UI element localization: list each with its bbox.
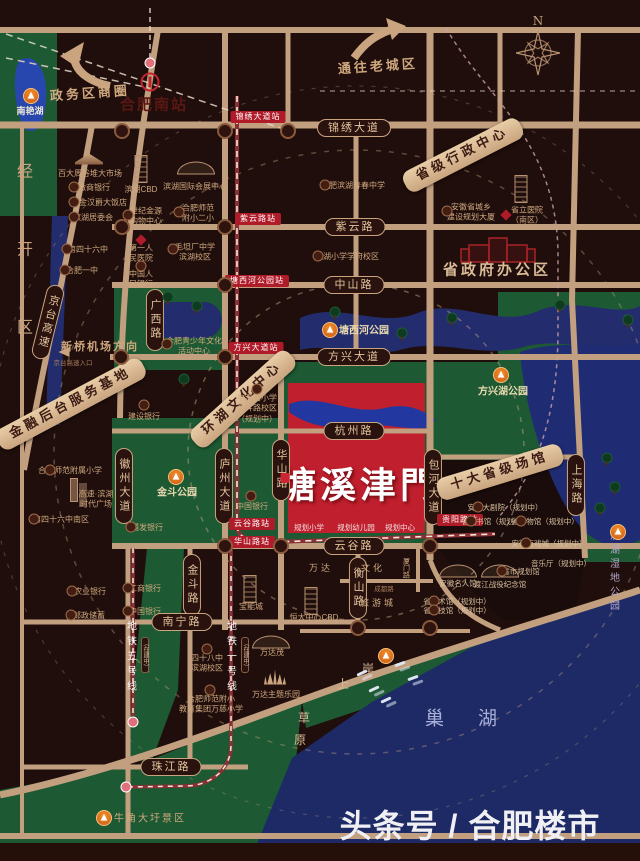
shore-char-yuan: 原 bbox=[294, 733, 306, 749]
tag-metro-line1: （在建中） bbox=[241, 637, 249, 673]
niujiao-park-icon bbox=[96, 810, 112, 826]
poi-binhu-cbd: 滨湖CBD bbox=[125, 185, 158, 195]
hengda-tower-icon bbox=[305, 587, 318, 615]
expo-shell-icon bbox=[177, 162, 215, 175]
zone-char-jing: 经 bbox=[17, 162, 33, 183]
label-chengdu-road: 成都路 bbox=[374, 586, 394, 594]
ribbon-finance-base: 金融后台服务基地 bbox=[0, 355, 149, 452]
junction-12 bbox=[350, 620, 366, 636]
shouchun-icon bbox=[320, 180, 331, 191]
hospital-building-icon bbox=[515, 175, 528, 203]
committee-icon bbox=[69, 212, 80, 223]
project-plan-kindergarten: 规划幼儿园 bbox=[337, 523, 375, 533]
line5-end-dot bbox=[128, 717, 139, 728]
hotel-icon bbox=[69, 197, 80, 208]
pill-huashan-road: 华山路 bbox=[272, 439, 290, 501]
no48-icon bbox=[202, 644, 213, 655]
poi-century-jinyuan-mall: 世纪金源 购物中心 bbox=[130, 207, 162, 228]
wanda-mao-icon bbox=[252, 636, 290, 649]
maotanchang-icon bbox=[168, 244, 179, 255]
poi-jindou-park: 金斗公园 bbox=[157, 487, 197, 500]
tree-11 bbox=[595, 503, 606, 514]
tree-10 bbox=[610, 482, 621, 493]
zone-char-kai: 开 bbox=[17, 240, 33, 261]
poi-shifan-no2-primary: 合肥师范 附小二小 bbox=[182, 204, 214, 225]
no46-icon bbox=[62, 244, 73, 255]
boc-south-icon bbox=[123, 606, 134, 617]
no46-south-icon bbox=[29, 514, 40, 525]
pill-luzhou-avenue: 庐州大道 bbox=[215, 448, 233, 524]
planning-tower-icon bbox=[442, 206, 453, 217]
tree-6 bbox=[447, 313, 458, 324]
poi-wanda-mao: 万达茂 bbox=[260, 648, 284, 658]
poi-peoples-bank: 中国人 民银行 bbox=[129, 270, 153, 291]
tree-3 bbox=[179, 374, 190, 385]
project-plan-center: 规划中心 bbox=[385, 523, 415, 533]
ribbon-provincial-admin-center: 省级行政中心 bbox=[400, 115, 526, 194]
label-xiamen-road: 厦门路 bbox=[401, 558, 410, 579]
cbd-tower-icon bbox=[135, 155, 148, 183]
poi-wanci-primary: 合肥师范附小 教育集团万慈小学 bbox=[179, 695, 243, 716]
station-metro-dot bbox=[145, 58, 156, 69]
venue-dot-3 bbox=[516, 516, 527, 527]
poi-hefei-no1-middle: 合肥一中 bbox=[66, 266, 98, 276]
abc-icon bbox=[67, 586, 78, 597]
pill-ziyun-road: 紫云路 bbox=[325, 218, 386, 236]
fangxinghu-park-icon bbox=[493, 367, 509, 383]
badge-huashan-road-station: 华山路站 bbox=[229, 536, 275, 548]
pill-zhujiang-road: 珠江路 bbox=[141, 758, 202, 776]
junction-9 bbox=[217, 538, 233, 554]
poi-gaosu-times-plaza: 高速·滨湖 时代广场 bbox=[79, 490, 114, 511]
poi-niujiao-scenic: 牛角大圩景区 bbox=[114, 813, 186, 826]
pill-nanning-road: 南宁路 bbox=[152, 613, 213, 631]
pill-jinxiu-avenue: 锦绣大道 bbox=[317, 119, 391, 137]
label-chaohu-lake: 巢 湖 bbox=[425, 707, 511, 732]
tangxihe-park-icon bbox=[322, 322, 338, 338]
no1-icon bbox=[60, 265, 71, 276]
label-hefei-south-station: 合肥南站 bbox=[120, 95, 188, 115]
poi-postal-savings: 邮政储蓄 bbox=[73, 611, 105, 621]
shore-char-cao: 草 bbox=[298, 711, 310, 727]
poi-binhu-expo-center: 滨湖国际会展中心 bbox=[163, 182, 227, 192]
market-roof-icon bbox=[75, 154, 103, 165]
labels-layer: 南艳湖政务区商圈合肥南站通往老城区锦绣大道站锦绣大道省级行政中心经开区百大周谷堆… bbox=[0, 0, 640, 861]
venue-celebrity-hall: 安徽名人馆 bbox=[439, 579, 477, 589]
wanda-castle-icon bbox=[264, 670, 286, 685]
ccb-icon bbox=[139, 400, 150, 411]
hospital-red-icon bbox=[500, 209, 511, 220]
poi-youth-culture-center: 合肥青少年文化 活动中心 bbox=[166, 337, 222, 358]
boat-3 bbox=[380, 696, 391, 703]
train-station-icon bbox=[141, 73, 160, 92]
jindou-park-icon bbox=[168, 469, 184, 485]
junction-4 bbox=[114, 219, 130, 235]
xuefu-school-icon bbox=[313, 251, 324, 262]
badge-tangxihe-park-station: 塘西河公园站 bbox=[225, 275, 289, 287]
tunxi-school-icon bbox=[252, 384, 263, 395]
poi-xuefu-primary: 滨湖小学学府校区 bbox=[315, 252, 379, 262]
venue-dot-5 bbox=[497, 566, 508, 577]
junction-10 bbox=[273, 538, 289, 554]
poi-maotanchang-school: 毛坦厂中学 滨湖校区 bbox=[175, 243, 215, 264]
label-to-old-town: 通往老城区 bbox=[338, 57, 419, 79]
label-metro-line5: 地铁五号线 bbox=[124, 621, 137, 696]
pill-yungu-road: 云谷路 bbox=[324, 537, 385, 555]
nanyan-lake-icon bbox=[23, 88, 39, 104]
tree-7 bbox=[555, 300, 566, 311]
badge-fangxing-avenue-station: 方兴大道站 bbox=[229, 342, 284, 354]
poi-ccb-bank: 建设银行 bbox=[128, 412, 160, 422]
boat-4 bbox=[394, 661, 405, 668]
badge-yungu-road-station: 云谷路站 bbox=[229, 518, 275, 530]
airport-arrow-icon bbox=[59, 347, 70, 357]
junction-7 bbox=[113, 349, 129, 365]
tree-8 bbox=[623, 315, 634, 326]
pill-fangxing-avenue: 方兴大道 bbox=[317, 348, 391, 366]
baoneng-tower-icon bbox=[244, 575, 257, 603]
poi-no48-binhu: 四十八中 滨湖校区 bbox=[191, 654, 223, 675]
poi-tunxi-primary: 屯溪路小学 金斗路校区 （规划中） bbox=[237, 393, 277, 424]
badge-jinxiu-avenue-station: 锦绣大道站 bbox=[231, 111, 286, 123]
zone-char-qu: 区 bbox=[17, 318, 33, 339]
junction-11 bbox=[422, 538, 438, 554]
poi-zhougudui-market: 百大周谷堆大市场 bbox=[58, 169, 122, 179]
tree-2 bbox=[192, 301, 203, 312]
poi-no46-middle: 第四十六中 bbox=[68, 245, 108, 255]
block-wenhua: 文化 bbox=[361, 563, 385, 575]
real-estate-location-map: N 南艳湖政务区商圈合肥南站通往老城区锦绣大道站锦绣大道省级行政中心经开区百大周… bbox=[0, 0, 640, 861]
junction-3 bbox=[280, 123, 296, 139]
venue-dot-1 bbox=[473, 502, 484, 513]
tree-4 bbox=[330, 307, 341, 318]
celebrity-hall-icon bbox=[439, 565, 477, 578]
label-expressway-entrance: 京台高速入口 bbox=[54, 360, 93, 368]
ribbon-ten-provincial-venues: 十大省级场馆 bbox=[434, 442, 565, 502]
pill-zhongshan-road: 中山路 bbox=[324, 276, 385, 294]
wanci-icon bbox=[205, 685, 216, 696]
venue-dot-2 bbox=[466, 516, 477, 527]
boat-5 bbox=[407, 675, 418, 682]
icbc-icon bbox=[123, 583, 134, 594]
label-metro-line1: 地铁一号线 bbox=[224, 621, 237, 696]
tree-9 bbox=[602, 453, 613, 464]
poi-tangxihe-park: 塘西河公园 bbox=[339, 325, 389, 338]
poi-planning-tower: 安徽省城乡 建设规划大厦 bbox=[447, 203, 495, 224]
shifan-primary-icon bbox=[174, 207, 185, 218]
label-zhengwu-business-circle: 政务区商圈 bbox=[50, 84, 131, 106]
block-wanda: 万达 bbox=[309, 563, 333, 575]
block-lvyoucheng: 旅游城 bbox=[360, 598, 396, 610]
tag-metro-line5: （在建中） bbox=[141, 637, 149, 673]
label-gov-office-area: 省政府办公区 bbox=[443, 260, 551, 280]
pill-huizhou-avenue: 徽州大道 bbox=[115, 448, 133, 524]
label-nanyan-lake: 南艳湖 bbox=[16, 106, 43, 118]
poi-fangxinghu-park: 方兴湖公园 bbox=[478, 386, 528, 399]
youth-center-icon bbox=[162, 339, 173, 350]
poi-huishang-bank: 徽商银行 bbox=[78, 183, 110, 193]
spd-icon bbox=[126, 522, 137, 533]
watermark-toutiao-hefei: 头条号 / 合肥楼市 bbox=[340, 806, 601, 848]
tree-5 bbox=[397, 328, 408, 339]
venue-dot-4 bbox=[521, 538, 532, 549]
psbc-icon bbox=[66, 610, 77, 621]
junction-13 bbox=[422, 620, 438, 636]
poi-shouchun-middle: 合肥滨湖寿春中学 bbox=[321, 181, 385, 191]
poi-provincial-hospital: 省立医院 （南区） bbox=[511, 206, 543, 227]
boat-2 bbox=[368, 685, 379, 692]
pill-hangzhou-road: 杭州路 bbox=[324, 422, 385, 440]
junction-5 bbox=[217, 219, 233, 235]
poi-abc-bank: 农业银行 bbox=[74, 587, 106, 597]
pill-shanghai-road: 上海路 bbox=[567, 454, 585, 516]
junction-2 bbox=[217, 123, 233, 139]
badge-ziyun-road-station: 紫云路站 bbox=[235, 213, 281, 225]
logo-seal-icon bbox=[281, 473, 290, 483]
label-binhu-wetland-park: 滨湖湿地公园 bbox=[607, 530, 620, 614]
junction-6 bbox=[217, 277, 233, 293]
poi-wanda-theme-park: 万达主题乐园 bbox=[252, 690, 300, 700]
pill-jindou-road: 金斗路 bbox=[183, 554, 201, 616]
huishang-bank-icon bbox=[69, 182, 80, 193]
line1-end-dot bbox=[121, 782, 132, 793]
project-plan-school: 规划小学 bbox=[294, 523, 324, 533]
anshang-caoyuan-icon bbox=[378, 648, 394, 664]
project-logo: 塘溪津門 bbox=[280, 463, 440, 510]
venue-dot-7 bbox=[429, 605, 440, 616]
poi-boc-huashan: 中国银行 bbox=[236, 502, 268, 512]
venue-dujiang-memorial: 渡江战役纪念馆 bbox=[474, 580, 527, 590]
poi-baoneng-city: 宝能城 bbox=[239, 602, 263, 612]
wetland-park-icon bbox=[610, 524, 626, 540]
tree-1 bbox=[163, 292, 174, 303]
poi-icbc-bank: 工商银行 bbox=[129, 584, 161, 594]
junction-1 bbox=[114, 123, 130, 139]
shore-char-shang: 上 bbox=[337, 677, 349, 693]
pboc-icon bbox=[136, 261, 147, 272]
junction-8 bbox=[217, 349, 233, 365]
gaosu-towers-icon bbox=[70, 478, 78, 502]
boc-huashan-icon bbox=[246, 491, 257, 502]
poi-no46-south-campus: 第四十六中南区 bbox=[33, 515, 89, 525]
shifan-affiliated-icon bbox=[45, 465, 56, 476]
